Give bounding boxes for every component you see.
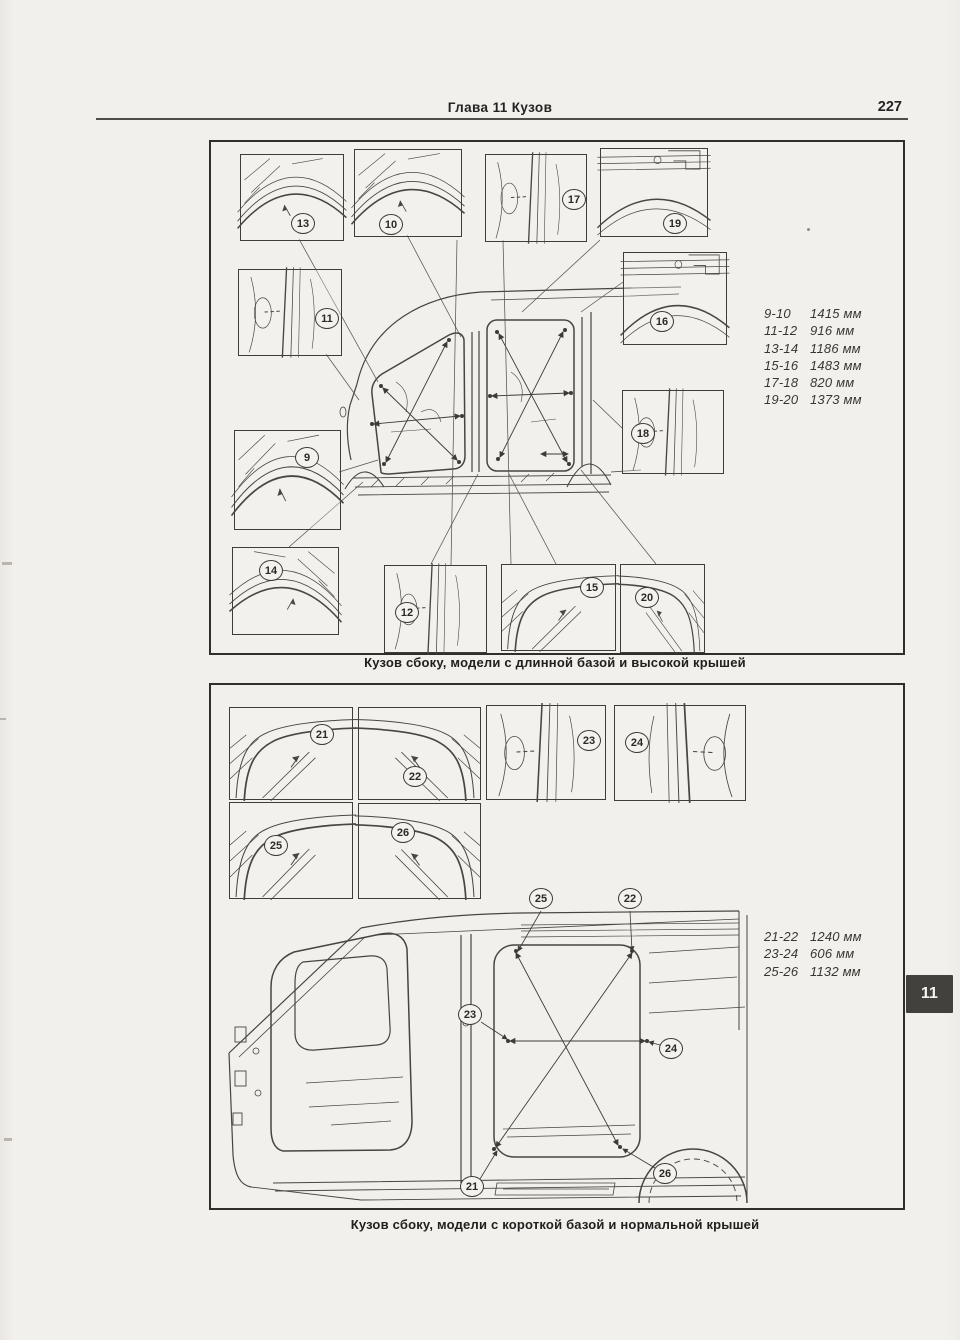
dimension-row: 9-101415 мм (764, 306, 862, 323)
callout-badge: 26 (391, 822, 415, 843)
callout-badge: 24 (659, 1038, 683, 1059)
callout-number: 17 (568, 194, 580, 206)
callout-number: 20 (641, 592, 653, 604)
scan-mark (4, 1138, 12, 1141)
callout-number: 26 (397, 827, 409, 839)
callout-number: 9 (304, 452, 310, 464)
callout-number: 26 (659, 1168, 671, 1180)
callout-badge: 14 (259, 560, 283, 581)
detail-inset: 24 (614, 705, 746, 801)
detail-inset: 12 (384, 565, 487, 653)
inset-art (621, 565, 704, 652)
callout-number: 14 (265, 565, 277, 577)
dimension-value: 1132 мм (810, 964, 861, 979)
dimension-table: 21-221240 мм 23-24606 мм 25-261132 мм (764, 929, 862, 981)
detail-inset: 15 (501, 564, 616, 651)
callout-badge: 9 (295, 447, 319, 468)
dimension-points: 21-22 (764, 929, 810, 944)
dimension-value: 1483 мм (810, 358, 862, 373)
detail-inset: 11 (238, 269, 342, 356)
dimension-row: 25-261132 мм (764, 964, 862, 981)
dimension-row: 11-12916 мм (764, 323, 862, 340)
detail-inset: 13 (240, 154, 344, 241)
callout-number: 21 (466, 1181, 478, 1193)
callout-badge: 19 (663, 213, 687, 234)
inset-art (235, 431, 340, 529)
callout-badge: 15 (580, 577, 604, 598)
dimension-value: 820 мм (810, 375, 854, 390)
callout-number: 18 (637, 428, 649, 440)
inset-art (230, 708, 352, 799)
callout-badge: 25 (529, 888, 553, 909)
detail-inset: 14 (232, 547, 339, 635)
callout-number: 23 (464, 1009, 476, 1021)
chapter-tab: 11 (906, 975, 953, 1013)
callout-badge: 21 (310, 724, 334, 745)
chapter-header: Глава 11 Кузов (280, 100, 720, 115)
callout-badge: 22 (618, 888, 642, 909)
dimension-points: 19-20 (764, 392, 810, 407)
scan-mark (0, 718, 6, 720)
inset-art (601, 149, 707, 236)
dimension-value: 916 мм (810, 323, 854, 338)
inset-art (615, 706, 745, 800)
detail-inset: 17 (485, 154, 587, 242)
callout-badge: 22 (403, 766, 427, 787)
header-rule (96, 118, 908, 120)
inset-art (230, 803, 352, 898)
callout-badge: 10 (379, 214, 403, 235)
detail-inset: 16 (623, 252, 727, 345)
detail-inset: 18 (622, 390, 724, 474)
detail-inset: 25 (229, 802, 353, 899)
detail-inset: 26 (358, 803, 481, 899)
inset-art (487, 706, 605, 799)
callout-number: 12 (401, 607, 413, 619)
callout-badge: 24 (625, 732, 649, 753)
detail-inset: 21 (229, 707, 353, 800)
dimension-value: 606 мм (810, 946, 854, 961)
dimension-points: 25-26 (764, 964, 810, 979)
dimension-value: 1373 мм (810, 392, 862, 407)
callout-badge: 17 (562, 189, 586, 210)
callout-badge: 12 (395, 602, 419, 623)
callout-number: 21 (316, 729, 328, 741)
dimension-points: 13-14 (764, 341, 810, 356)
dimension-value: 1415 мм (810, 306, 862, 321)
callout-number: 23 (583, 735, 595, 747)
scan-mark (2, 562, 12, 565)
callout-badge: 20 (635, 587, 659, 608)
callout-number: 10 (385, 219, 397, 231)
figure-caption: Кузов сбоку, модели с длинной базой и вы… (209, 655, 901, 670)
dimension-table: 9-101415 мм 11-12916 мм 13-141186 мм 15-… (764, 306, 862, 410)
detail-inset: 22 (358, 707, 481, 800)
callout-badge: 23 (577, 730, 601, 751)
callout-number: 24 (631, 737, 643, 749)
callout-number: 25 (535, 893, 547, 905)
callout-number: 24 (665, 1043, 677, 1055)
dimension-value: 1186 мм (810, 341, 861, 356)
inset-art (355, 150, 461, 236)
callout-number: 16 (656, 316, 668, 328)
dimension-points: 23-24 (764, 946, 810, 961)
callout-number: 13 (297, 218, 309, 230)
dimension-value: 1240 мм (810, 929, 862, 944)
inset-art (233, 548, 338, 634)
callout-number: 22 (624, 893, 636, 905)
dimension-points: 11-12 (764, 323, 810, 338)
inset-art (359, 804, 480, 898)
callout-badge: 16 (650, 311, 674, 332)
manual-page: Глава 11 Кузов 227 (0, 0, 960, 1340)
dimension-row: 23-24606 мм (764, 946, 862, 963)
dimension-points: 15-16 (764, 358, 810, 373)
scan-mark (807, 228, 810, 231)
callout-badge: 13 (291, 213, 315, 234)
inset-art (624, 253, 726, 344)
callout-number: 11 (321, 313, 333, 325)
dimension-row: 19-201373 мм (764, 392, 862, 409)
dimension-row: 17-18820 мм (764, 375, 862, 392)
dimension-points: 9-10 (764, 306, 810, 321)
dimension-row: 15-161483 мм (764, 358, 862, 375)
callout-badge: 25 (264, 835, 288, 856)
callout-badge: 21 (460, 1176, 484, 1197)
callout-badge: 23 (458, 1004, 482, 1025)
figure-short-wheelbase: 21 22 23 24 25 26 25 22 23 24 21 26 (209, 683, 905, 1210)
callout-number: 25 (270, 840, 282, 852)
callout-number: 19 (669, 218, 681, 230)
figure-long-wheelbase: 13 10 17 19 11 16 9 18 (209, 140, 905, 655)
dimension-row: 13-141186 мм (764, 341, 862, 358)
callout-badge: 26 (653, 1163, 677, 1184)
callout-number: 15 (586, 582, 598, 594)
detail-inset: 20 (620, 564, 705, 653)
dimension-points: 17-18 (764, 375, 810, 390)
detail-inset: 10 (354, 149, 462, 237)
dimension-row: 21-221240 мм (764, 929, 862, 946)
detail-inset: 23 (486, 705, 606, 800)
detail-inset: 19 (600, 148, 708, 237)
figure-caption: Кузов сбоку, модели с короткой базой и н… (209, 1217, 901, 1232)
callout-badge: 18 (631, 423, 655, 444)
callout-badge: 11 (315, 308, 339, 329)
page-number: 227 (852, 99, 902, 115)
callout-number: 22 (409, 771, 421, 783)
detail-inset: 9 (234, 430, 341, 530)
